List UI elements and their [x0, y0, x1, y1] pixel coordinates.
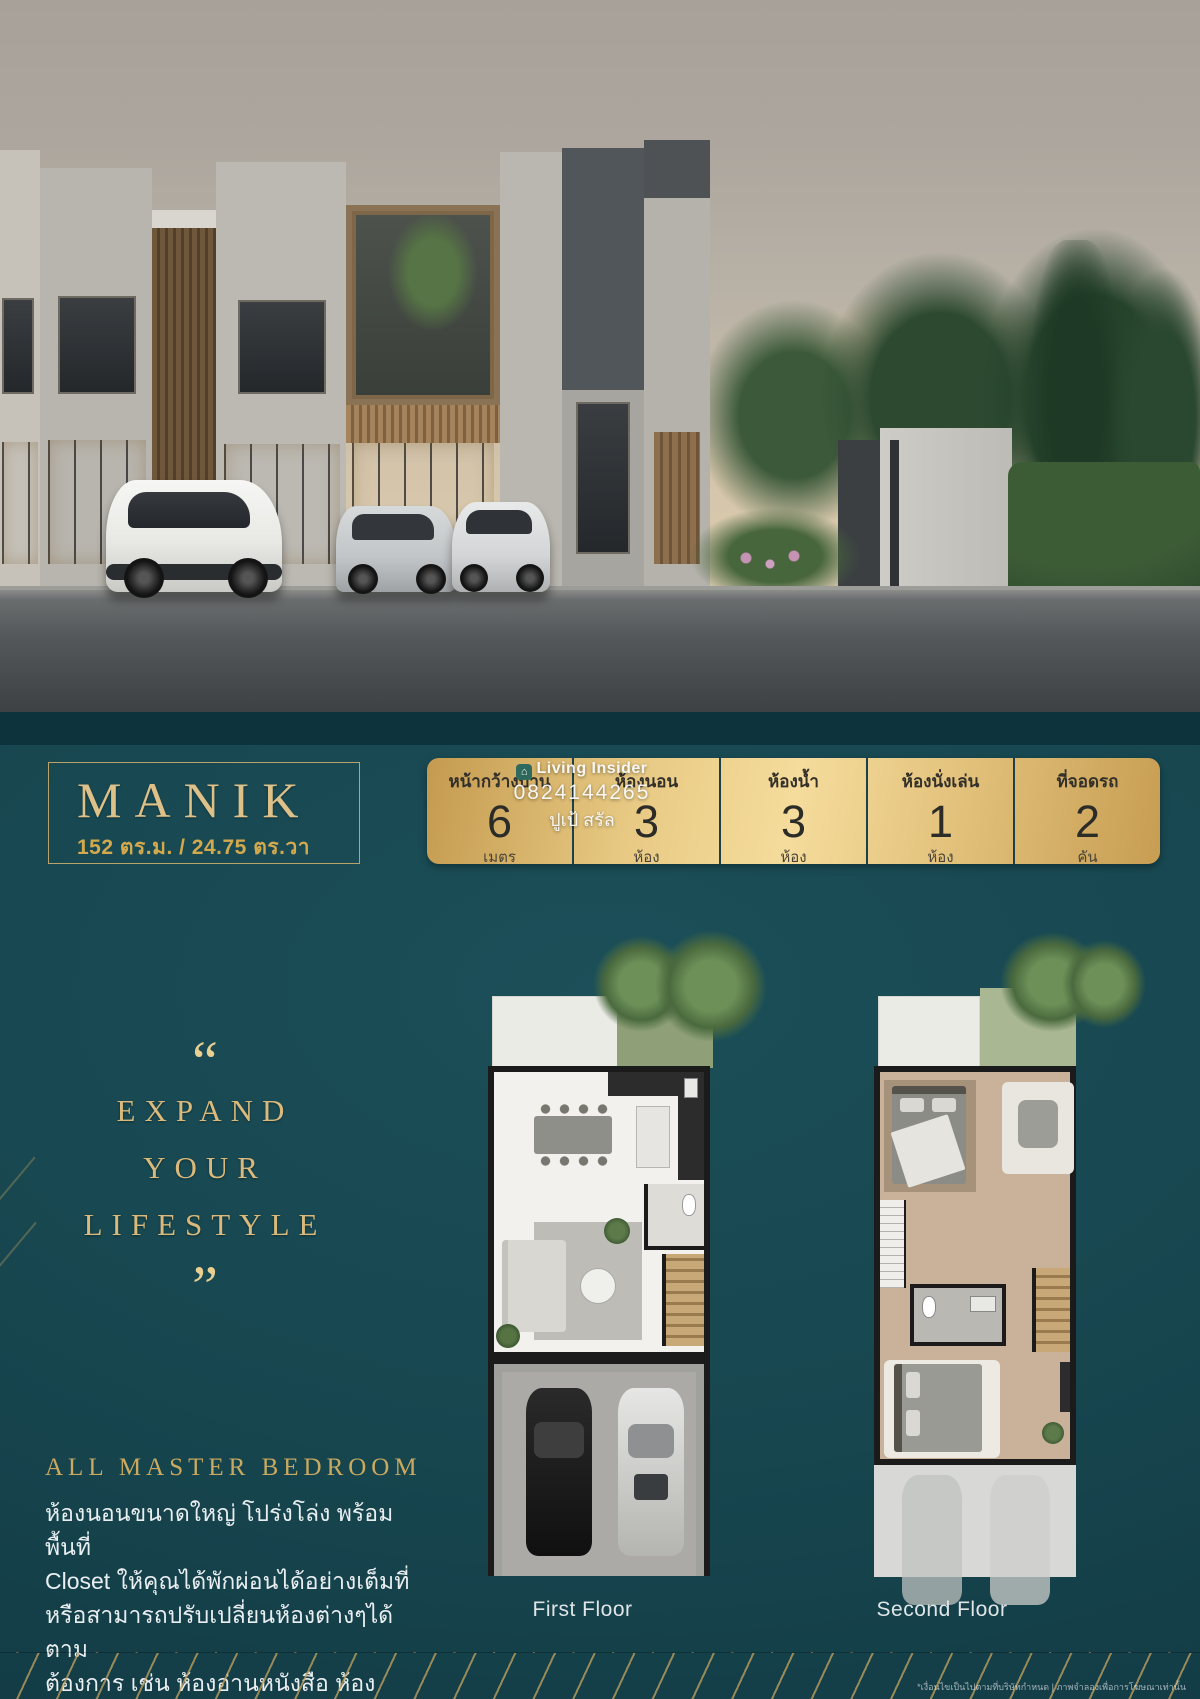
sunroof	[634, 1474, 668, 1500]
wood-slat-panel	[346, 405, 500, 443]
watermark-brand-text: Living Insider	[536, 760, 647, 777]
silver-car-top	[618, 1388, 684, 1556]
spec-value: 1	[868, 797, 1013, 847]
spec-unit: เมตร	[427, 845, 572, 869]
sports-car-windows	[466, 510, 532, 534]
spec-unit: คัน	[1015, 845, 1160, 869]
close-quote-icon: ”	[55, 1267, 355, 1307]
parapet-cap	[152, 210, 216, 228]
spec-parking: ที่จอดรถ 2 คัน	[1013, 758, 1160, 864]
suv-windows	[128, 492, 250, 528]
sedan-windows	[352, 514, 434, 540]
feature-heading: ALL MASTER BEDROOM	[45, 1454, 435, 1482]
wheel	[228, 558, 268, 598]
watermark: ⌂Living Insider 0824144265 ปูเป้ สรัล	[432, 760, 732, 834]
dark-facade-panel	[562, 148, 644, 390]
second-floor-label: Second Floor	[808, 1598, 1076, 1622]
watermark-phone: 0824144265	[432, 781, 732, 805]
lounge-rug	[1002, 1082, 1074, 1174]
spec-unit: ห้อง	[721, 845, 866, 869]
silver-sedan	[336, 506, 456, 592]
roof-terrace	[878, 996, 980, 1068]
quote-line: EXPAND	[55, 1082, 355, 1139]
sink	[970, 1296, 996, 1312]
watermark-brand: ⌂Living Insider	[432, 760, 732, 780]
quote-line: YOUR	[55, 1139, 355, 1196]
pillow	[906, 1372, 920, 1398]
parapet-dark	[644, 140, 710, 198]
toilet	[682, 1194, 696, 1216]
divider-band	[0, 712, 1200, 745]
kitchen-counter	[608, 1072, 678, 1096]
quote-block: “ EXPAND YOUR LIFESTYLE ”	[55, 1042, 355, 1307]
pillow	[900, 1098, 924, 1112]
plan-title-box: MANIK 152 ตร.ม. / 24.75 ตร.วา	[48, 762, 360, 864]
windshield	[534, 1422, 584, 1458]
spec-value: 3	[721, 797, 866, 847]
staircase	[1032, 1268, 1070, 1352]
first-floor-plan: First Floor	[455, 930, 710, 1590]
plan-tree	[1062, 940, 1146, 1028]
wheel	[516, 564, 544, 592]
wardrobe	[880, 1200, 906, 1288]
disclaimer: *เงื่อนไขเป็นไปตามที่บริษัทกำหนด | ภาพจำ…	[917, 1680, 1186, 1694]
dining-chairs	[536, 1156, 612, 1166]
bed	[892, 1086, 966, 1184]
pillow	[932, 1098, 956, 1112]
garage	[488, 1358, 710, 1576]
balcony-tree	[388, 212, 478, 332]
garage-below-ghost	[874, 1465, 1076, 1577]
bathroom	[910, 1284, 1006, 1346]
spec-label: ที่จอดรถ	[1015, 768, 1160, 795]
white-suv	[106, 480, 282, 592]
plan-size: 152 ตร.ม. / 24.75 ตร.วา	[77, 831, 359, 864]
hedge	[1008, 462, 1200, 594]
plant	[1042, 1422, 1064, 1444]
sofa	[502, 1240, 566, 1332]
living-insider-logo-icon: ⌂	[516, 764, 532, 780]
feature-line: ห้องนอนขนาดใหญ่ โปร่งโล่ง พร้อมพื้นที่	[45, 1496, 435, 1564]
staircase	[662, 1254, 704, 1346]
bed	[894, 1364, 982, 1452]
pillow	[906, 1410, 920, 1436]
hydrangea-flowers	[736, 548, 806, 576]
garden-wall-cube	[880, 428, 1012, 594]
window	[576, 402, 630, 554]
dining-chairs	[536, 1104, 612, 1114]
open-quote-icon: “	[55, 1042, 355, 1082]
wall-slit-window	[890, 440, 899, 590]
ghost-car	[990, 1475, 1050, 1605]
plant	[604, 1218, 630, 1244]
first-floor-rooms	[488, 1066, 710, 1358]
ghost-car	[902, 1475, 962, 1605]
wheel	[348, 564, 378, 594]
window	[2, 298, 34, 394]
plan-name: MANIK	[77, 771, 359, 829]
armchair	[1018, 1100, 1058, 1148]
bathroom	[644, 1184, 704, 1250]
wheel	[460, 564, 488, 592]
second-floor-rooms	[874, 1066, 1076, 1465]
watermark-agent: ปูเป้ สรัล	[432, 805, 732, 834]
spec-value: 2	[1015, 797, 1160, 847]
wheel	[416, 564, 446, 594]
black-car-top	[526, 1388, 592, 1556]
wheel	[124, 558, 164, 598]
spec-unit: ห้อง	[868, 845, 1013, 869]
spec-label: ห้องน้ำ	[721, 768, 866, 795]
road	[0, 590, 1200, 712]
spec-bathrooms: ห้องน้ำ 3 ห้อง	[719, 758, 866, 864]
sports-car	[452, 502, 550, 592]
ornament-line	[0, 1222, 37, 1292]
brochure-body: MANIK 152 ตร.ม. / 24.75 ตร.วา หน้ากว้างบ…	[0, 712, 1200, 1699]
brochure-page: MANIK 152 ตร.ม. / 24.75 ตร.วา หน้ากว้างบ…	[0, 0, 1200, 1699]
toilet	[922, 1296, 936, 1318]
coffee-table	[580, 1268, 616, 1304]
console-shelf	[1060, 1362, 1070, 1412]
spec-label: ห้องนั่งเล่น	[868, 768, 1013, 795]
windshield	[628, 1424, 674, 1458]
kitchen-sink	[684, 1078, 698, 1098]
plan-tree	[655, 930, 767, 1042]
spec-livingroom: ห้องนั่งเล่น 1 ห้อง	[866, 758, 1013, 864]
second-floor-plan: Second Floor	[808, 930, 1076, 1590]
kitchen-island	[636, 1106, 670, 1168]
quote-line: LIFESTYLE	[55, 1196, 355, 1253]
feature-line: Closet ให้คุณได้พักผ่อนได้อย่างเต็มที่	[45, 1564, 435, 1598]
first-floor-label: First Floor	[455, 1598, 710, 1622]
spec-unit: ห้อง	[574, 845, 719, 869]
hero-photo	[0, 0, 1200, 712]
lit-window	[2, 442, 38, 564]
dining-table	[534, 1116, 612, 1154]
plant	[496, 1324, 520, 1348]
window	[58, 296, 136, 394]
window	[238, 300, 326, 394]
blanket	[891, 1114, 966, 1188]
